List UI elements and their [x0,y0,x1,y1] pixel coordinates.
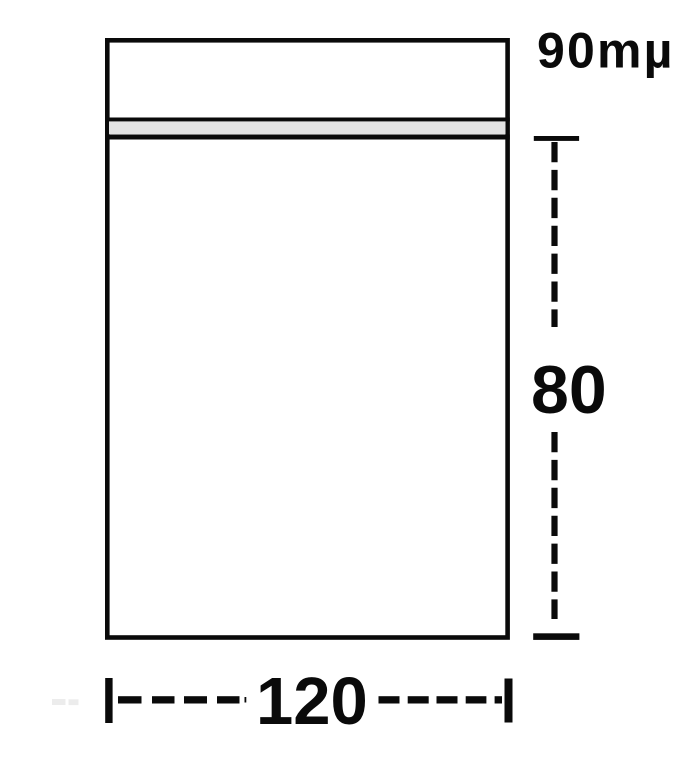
svg-text:80: 80 [531,352,607,428]
svg-text:90mµ: 90mµ [537,23,675,79]
svg-text:120: 120 [256,664,368,739]
